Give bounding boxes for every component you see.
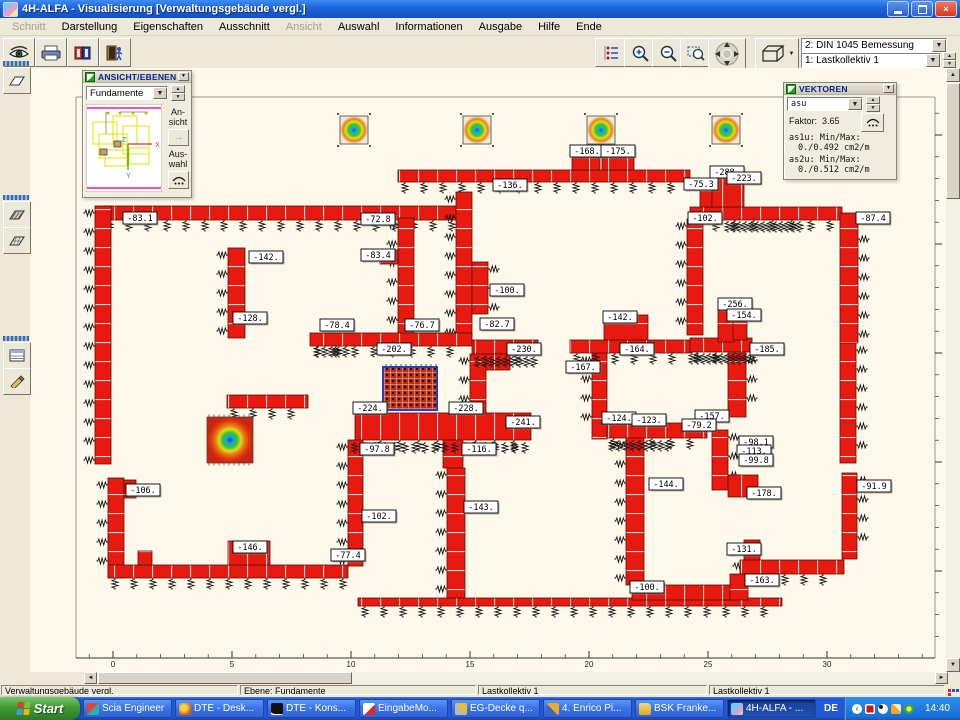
close-button[interactable]: ×: [935, 1, 957, 17]
pressure-value-text: -224.: [357, 404, 383, 414]
footing-contour-plot: [340, 116, 368, 144]
horizontal-scrollbar[interactable]: ◄ ►: [84, 672, 948, 684]
pan-compass-icon: [713, 41, 741, 67]
ruler-number: 25: [704, 660, 713, 669]
menu-ansicht: Ansicht: [278, 19, 330, 35]
pressure-value-text: -83.4: [365, 251, 391, 261]
hscroll-row: ◄ ►: [0, 672, 960, 684]
wall-segment: [447, 468, 465, 602]
scroll-down-icon[interactable]: ▼: [946, 658, 960, 672]
ruler-number: 20: [585, 660, 594, 669]
chevron-down-icon[interactable]: ▼: [848, 98, 862, 110]
window-titlebar[interactable]: 4H-ALFA - Visualisierung [Verwaltungsgeb…: [0, 0, 960, 18]
pressure-value-text: -128.: [237, 314, 263, 324]
footing-tick: [584, 113, 586, 115]
auswahl-button[interactable]: [168, 171, 189, 189]
wall-segment: [456, 192, 472, 336]
pressure-value-text: -163.: [749, 576, 775, 586]
vektor-spinner[interactable]: ▲ ▼: [866, 96, 880, 112]
scroll-left-icon[interactable]: ◄: [84, 672, 97, 684]
pressure-value-text: -146.: [237, 543, 263, 553]
wall-segment: [687, 219, 703, 335]
system-tray: ‹ 14:40: [844, 697, 960, 720]
spin-up-icon[interactable]: ▲: [943, 52, 956, 60]
pressure-value-text: -99.8: [743, 456, 769, 466]
pressure-value-text: -116.: [466, 445, 492, 455]
status-bar: Verwaltungsgebäude vergl. Ebene: Fundame…: [0, 684, 960, 697]
ruler-number: 30: [823, 660, 832, 669]
wall-segment: [108, 565, 348, 578]
footing-contour-plot: [587, 116, 615, 144]
wall-segment: [348, 440, 363, 566]
status-lastkollektiv-1: Lastkollektiv 1: [478, 685, 707, 695]
plane-3d-icon: [8, 74, 26, 88]
footing-tick: [369, 145, 371, 147]
minimize-icon: [894, 11, 902, 14]
menu-hilfe[interactable]: Hilfe: [530, 19, 568, 35]
tray-badge-icon[interactable]: [904, 704, 914, 714]
task-enrico[interactable]: 4. Enrico Pi...: [543, 699, 632, 718]
panel-collapse-button[interactable]: ▼: [178, 72, 189, 81]
plan-minimap[interactable]: X Y Z: [86, 104, 162, 192]
tray-red-icon[interactable]: [865, 704, 875, 714]
menu-bar: Schnitt Darstellung Eigenschaften Aussch…: [0, 18, 960, 36]
status-project: Verwaltungsgebäude vergl.: [1, 685, 238, 695]
as1u-label: as1u: Min/Max:: [789, 133, 861, 143]
menu-ausschnitt[interactable]: Ausschnitt: [211, 19, 278, 35]
faktor-row: Faktor: 3.65: [789, 116, 840, 126]
pin-icon: [786, 84, 796, 94]
wall-segment: [842, 473, 857, 559]
pressure-value-text: -78.4: [324, 321, 350, 331]
pressure-value-text: -202.: [381, 345, 407, 355]
zoom-window-icon: [686, 44, 706, 62]
console-icon: [271, 703, 283, 715]
mesh-raft-foundation: [383, 367, 437, 410]
spin-down-icon[interactable]: ▼: [866, 104, 880, 112]
pressure-value-text: -76.7: [409, 321, 435, 331]
windows-flag-icon: [16, 702, 31, 715]
chevron-down-icon[interactable]: ▼: [932, 39, 946, 52]
wall-segment: [712, 430, 728, 490]
pressure-value-text: -82.7: [484, 320, 510, 330]
pressure-value-text: -241.: [510, 418, 536, 428]
pressure-value-text: -131.: [731, 545, 757, 555]
as1u-value: 0./0.492 cm2/m: [798, 143, 870, 153]
vertical-scrollbar[interactable]: ▲ ▼: [946, 68, 960, 672]
footing-tick: [337, 145, 339, 147]
pressure-value-text: -75.3: [688, 180, 714, 190]
pin-icon: [85, 72, 95, 82]
task-bsk[interactable]: BSK Franke...: [635, 699, 724, 718]
task-dte-konsole[interactable]: DTE - Kons...: [267, 699, 356, 718]
view-eye-icon: [8, 44, 30, 62]
manual-button[interactable]: [67, 38, 99, 67]
dock-table-button[interactable]: [3, 342, 31, 369]
as2u-label: as2u: Min/Max:: [789, 155, 861, 165]
app-icon: [3, 2, 18, 17]
menu-eigenschaften[interactable]: Eigenschaften: [125, 19, 211, 35]
pen-icon: [9, 375, 25, 388]
pressure-value-text: -230.: [511, 345, 537, 355]
pressure-value-text: -154.: [731, 311, 757, 321]
wall-segment: [733, 320, 747, 340]
vektoren-panel[interactable]: VEKTOREN ▼ asu ▼ ▲ ▼ Faktor: 3.65 as1u: …: [783, 82, 897, 180]
pressure-value-text: -124.: [606, 414, 632, 424]
task-scia[interactable]: Scia Engineer: [83, 699, 172, 718]
view-3d-button[interactable]: ▼: [755, 38, 799, 69]
ebene-combo[interactable]: Fundamente ▼: [86, 86, 168, 100]
mesh-grid-icon: [8, 234, 26, 248]
dock-pen-button[interactable]: [3, 368, 31, 395]
pressure-value-text: -142.: [607, 313, 633, 323]
chevron-down-icon[interactable]: ▼: [926, 54, 940, 67]
svg-text:Z: Z: [122, 137, 127, 144]
wall-segment: [95, 206, 111, 464]
ansicht-apply-button[interactable]: →: [168, 129, 189, 146]
ruler-number: 0: [111, 660, 116, 669]
spin-up-icon[interactable]: ▲: [171, 85, 185, 93]
restore-button[interactable]: [911, 1, 933, 17]
vertical-scroll-thumb[interactable]: [946, 83, 960, 199]
restore-icon: [918, 5, 927, 14]
footing-tick: [709, 145, 711, 147]
pressure-value-text: -143.: [468, 503, 494, 513]
toolbar: ▼ 2: DIN 1045 Bemessung ▼ 1: Lastkollekt…: [0, 36, 960, 68]
dock-strip[interactable]: [3, 195, 29, 200]
load-collective-combo[interactable]: 1: Lastkollektiv 1 ▼: [801, 53, 941, 68]
footing-tick: [741, 145, 743, 147]
pressure-value-text: -228.: [453, 404, 479, 414]
svg-text:X: X: [155, 142, 160, 149]
selection-cloud-icon: [866, 117, 880, 128]
menu-ende[interactable]: Ende: [568, 19, 610, 35]
dock-mesh-button[interactable]: [3, 227, 31, 254]
wall-segment: [227, 395, 308, 408]
pressure-value-text: -106.: [130, 486, 156, 496]
wall-segment: [108, 478, 124, 578]
footing-contour-plot: [207, 417, 253, 463]
ebene-spinner[interactable]: ▲ ▼: [171, 85, 185, 101]
tray-panda-icon[interactable]: [878, 704, 888, 714]
task-eingabemodul[interactable]: EingabeMo...: [359, 699, 448, 718]
pressure-value-text: -102.: [366, 512, 392, 522]
window-title: 4H-ALFA - Visualisierung [Verwaltungsgeb…: [22, 3, 887, 15]
start-button[interactable]: Start: [0, 697, 80, 720]
vektor-options-button[interactable]: [861, 113, 884, 132]
ansicht-ebenen-panel[interactable]: ANSICHT/EBENEN ▼ Fundamente ▼ ▲ ▼: [82, 70, 192, 198]
pressure-value-text: -223.: [731, 174, 757, 184]
wall-segment: [472, 262, 488, 314]
footing-tick: [460, 145, 462, 147]
print-button[interactable]: [35, 38, 67, 67]
scia-icon: [87, 703, 99, 715]
taskbar-clock: 14:40: [925, 703, 954, 714]
footing-contour-plot: [712, 116, 740, 144]
pressure-value-text: -178.: [751, 489, 777, 499]
pressure-value-text: -123.: [636, 416, 662, 426]
tray-pencil-icon[interactable]: [891, 704, 901, 714]
pressure-value-text: -136.: [497, 181, 523, 191]
vektoren-panel-titlebar[interactable]: VEKTOREN ▼: [784, 83, 896, 95]
dock-strip[interactable]: [3, 61, 29, 66]
pressure-value-text: -100.: [494, 286, 520, 296]
pressure-value-text: -83.1: [127, 214, 153, 224]
panel-collapse-button[interactable]: ▼: [883, 84, 894, 93]
footing-tick: [337, 113, 339, 115]
pressure-value-text: -142.: [253, 253, 279, 263]
pressure-value-text: -168.: [574, 147, 600, 157]
pressure-value-text: -102.: [692, 214, 718, 224]
selection-cloud-icon: [172, 175, 186, 186]
alfa-icon: [731, 703, 743, 715]
wall-segment: [840, 343, 856, 463]
box-3d-icon: [760, 44, 786, 64]
wall-segment: [398, 170, 690, 182]
menu-schnitt: Schnitt: [4, 19, 54, 35]
arrow-right-icon: →: [174, 132, 184, 143]
menu-darstellung[interactable]: Darstellung: [54, 19, 126, 35]
menu-ausgabe[interactable]: Ausgabe: [471, 19, 530, 35]
ruler-number: 10: [347, 660, 356, 669]
footing-tick: [460, 113, 462, 115]
resize-grip: [946, 684, 960, 697]
tray-chevron-icon[interactable]: ‹: [852, 704, 862, 714]
task-dte-desk[interactable]: DTE - Desk...: [175, 699, 264, 718]
dock-hatch-button[interactable]: [3, 201, 31, 228]
wall-segment: [138, 551, 152, 565]
pressure-value-text: -97.8: [364, 445, 390, 455]
menu-auswahl[interactable]: Auswahl: [330, 19, 388, 35]
pressure-value-text: -164.: [624, 345, 650, 355]
scroll-right-icon[interactable]: ►: [935, 672, 948, 684]
zoom-out-icon: [658, 44, 678, 62]
load-collective-spinner[interactable]: ▲ ▼: [943, 52, 956, 68]
number-list-icon: [601, 44, 621, 62]
spin-up-icon[interactable]: ▲: [866, 96, 880, 104]
decke-icon: [455, 703, 467, 715]
design-code-combo[interactable]: 2: DIN 1045 Bemessung ▼: [801, 38, 947, 53]
footing-tick: [492, 113, 494, 115]
task-4h-alfa[interactable]: 4H-ALFA - ...: [727, 699, 816, 718]
vektor-combo[interactable]: asu ▼: [787, 97, 863, 111]
footing-tick: [616, 113, 618, 115]
view-3d-dropdown-arrow[interactable]: ▼: [789, 51, 795, 57]
minimize-button[interactable]: [887, 1, 909, 17]
pressure-value-text: -100.: [634, 583, 660, 593]
dock-plane-button[interactable]: [3, 67, 31, 94]
hatched-plane-icon: [8, 208, 26, 222]
printer-icon: [40, 44, 62, 62]
footing-tick: [492, 145, 494, 147]
footing-tick: [369, 113, 371, 115]
svg-text:Y: Y: [126, 173, 131, 180]
scroll-up-icon[interactable]: ▲: [946, 68, 960, 82]
pressure-value-text: -185.: [754, 345, 780, 355]
ruler-number: 5: [230, 660, 235, 669]
wall-segment: [840, 213, 858, 343]
pressure-value-text: -77.4: [335, 551, 361, 561]
pressure-value-text: -79.2: [686, 421, 712, 431]
dock-strip[interactable]: [3, 336, 29, 341]
pressure-value-text: -175.: [605, 147, 631, 157]
pencil-icon: [547, 703, 559, 715]
main-area: -83.1-72.8-136.-168.-175.-288.-223.-75.3…: [0, 68, 960, 672]
pressure-value-text: -144.: [653, 480, 679, 490]
menu-informationen[interactable]: Informationen: [387, 19, 470, 35]
ruler-number: 15: [466, 660, 475, 669]
taskbar: Start Scia Engineer DTE - Desk... DTE - …: [0, 697, 960, 720]
footing-tick: [741, 113, 743, 115]
exit-button[interactable]: [99, 38, 131, 67]
book-icon: [72, 44, 94, 62]
spin-down-icon[interactable]: ▼: [171, 93, 185, 101]
wall-segment: [355, 413, 531, 440]
status-ebene: Ebene: Fundamente: [240, 685, 476, 695]
zoom-in-icon: [630, 44, 650, 62]
spin-down-icon[interactable]: ▼: [943, 60, 956, 68]
task-eg-decke[interactable]: EG-Decke q...: [451, 699, 540, 718]
pressure-value-text: -91.9: [861, 482, 887, 492]
table-window-icon: [9, 349, 25, 362]
numbering-options-button[interactable]: [595, 38, 627, 67]
horizontal-scroll-thumb[interactable]: [98, 672, 352, 684]
exit-door-icon: [104, 44, 126, 62]
pressure-value-text: -72.8: [365, 215, 391, 225]
pressure-value-text: -167.: [570, 363, 596, 373]
dte-desk-icon: [179, 703, 191, 715]
chevron-down-icon[interactable]: ▼: [153, 87, 167, 99]
as2u-value: 0./0.512 cm2/m: [798, 165, 870, 175]
pan-button[interactable]: [708, 38, 746, 69]
pressure-value-text: -87.4: [860, 214, 886, 224]
wall-segment: [626, 438, 644, 585]
ansicht-panel-titlebar[interactable]: ANSICHT/EBENEN ▼: [83, 71, 191, 83]
eingabe-icon: [363, 703, 375, 715]
footing-tick: [709, 113, 711, 115]
wall-segment: [740, 560, 844, 574]
status-lastkollektiv-2: Lastkollektiv 1: [709, 685, 945, 695]
footing-contour-plot: [463, 116, 491, 144]
language-indicator[interactable]: DE: [824, 703, 838, 714]
folder-icon: [639, 703, 651, 715]
